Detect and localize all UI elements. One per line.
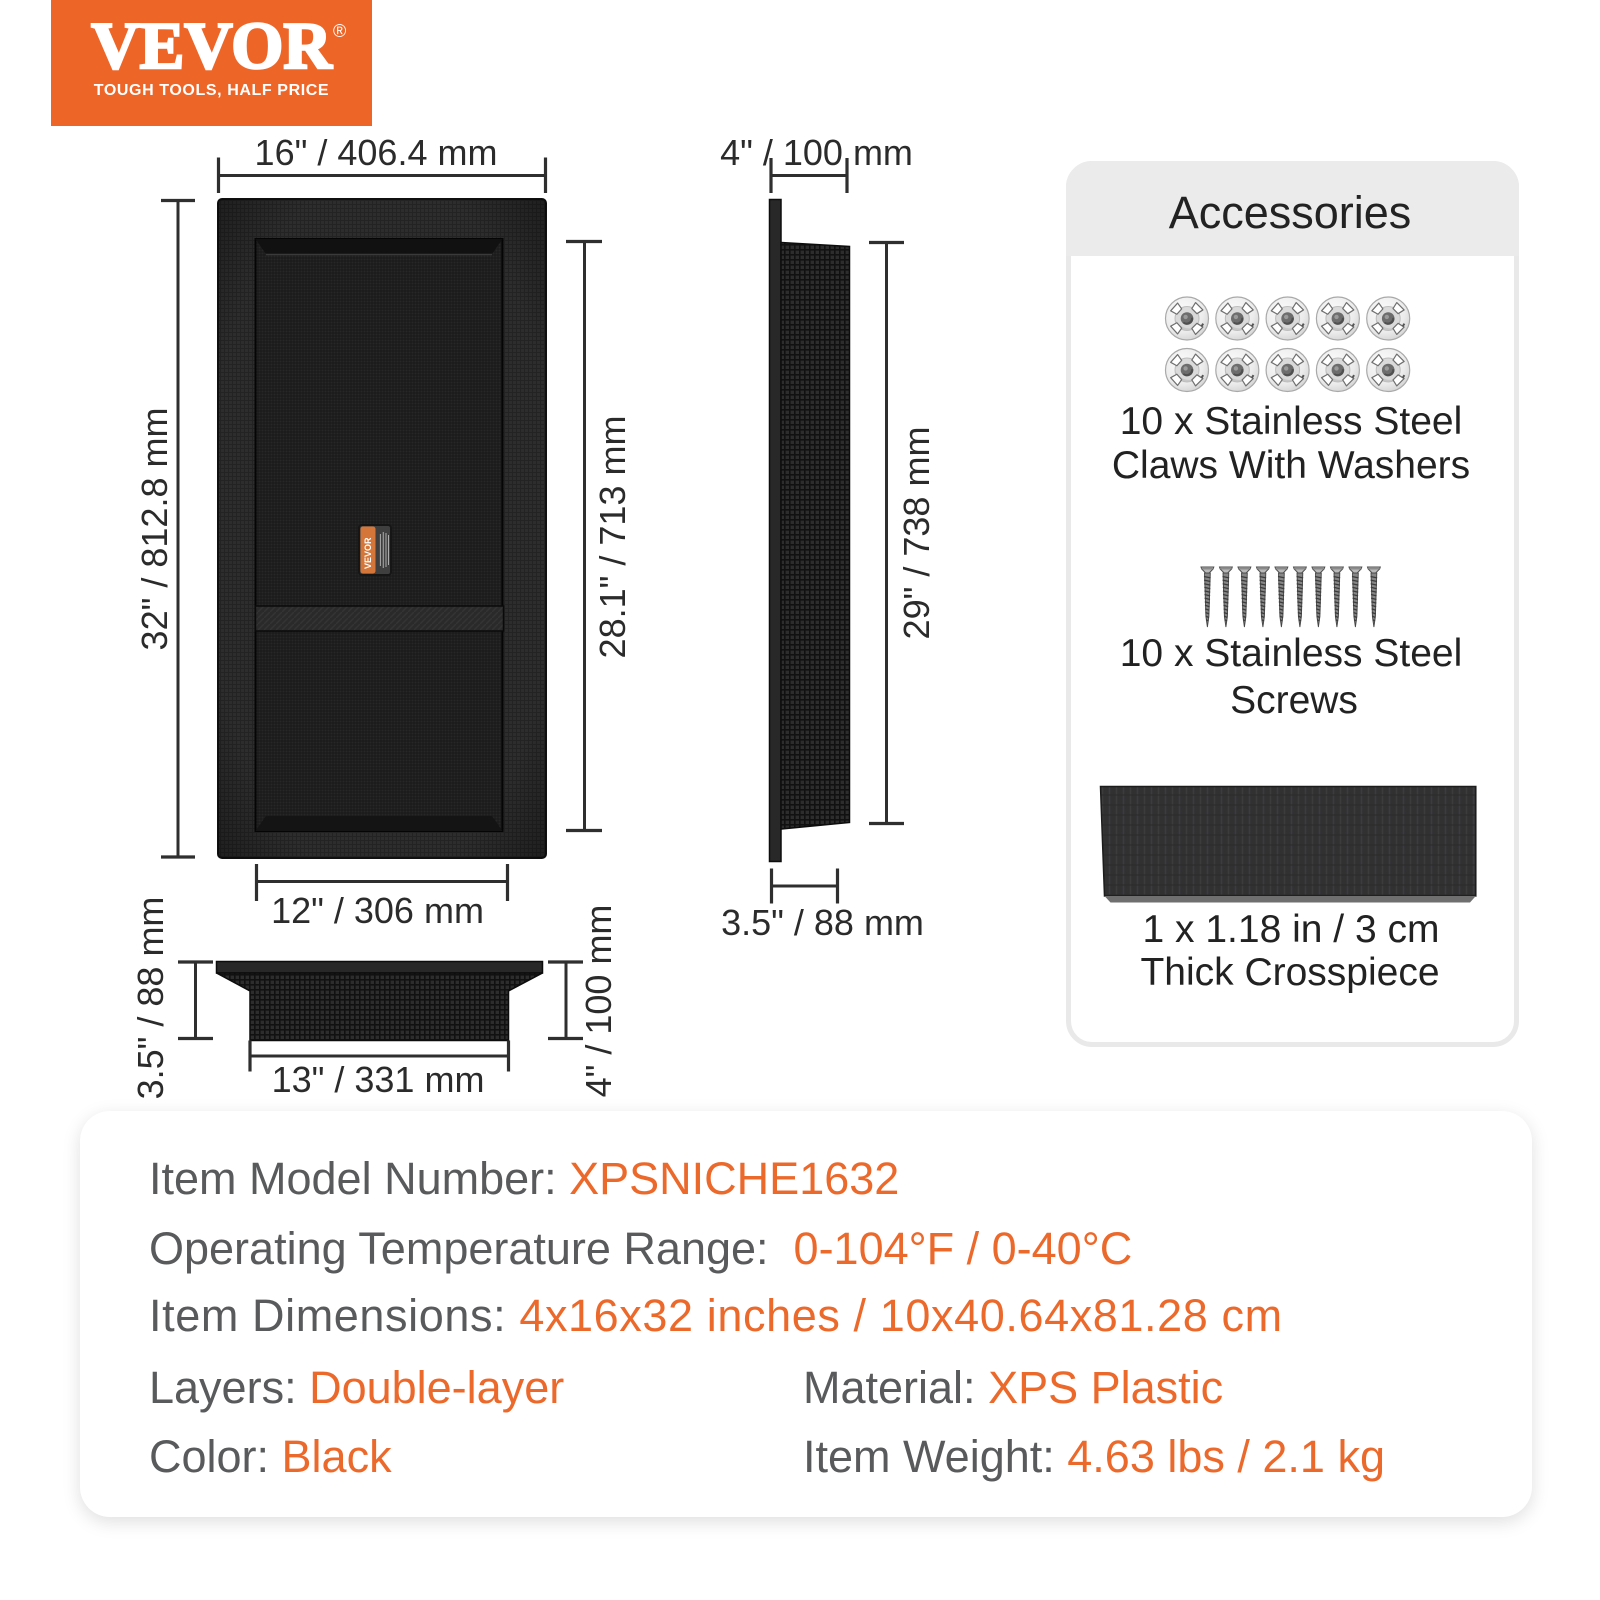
svg-text:VEVOR: VEVOR	[363, 537, 373, 569]
